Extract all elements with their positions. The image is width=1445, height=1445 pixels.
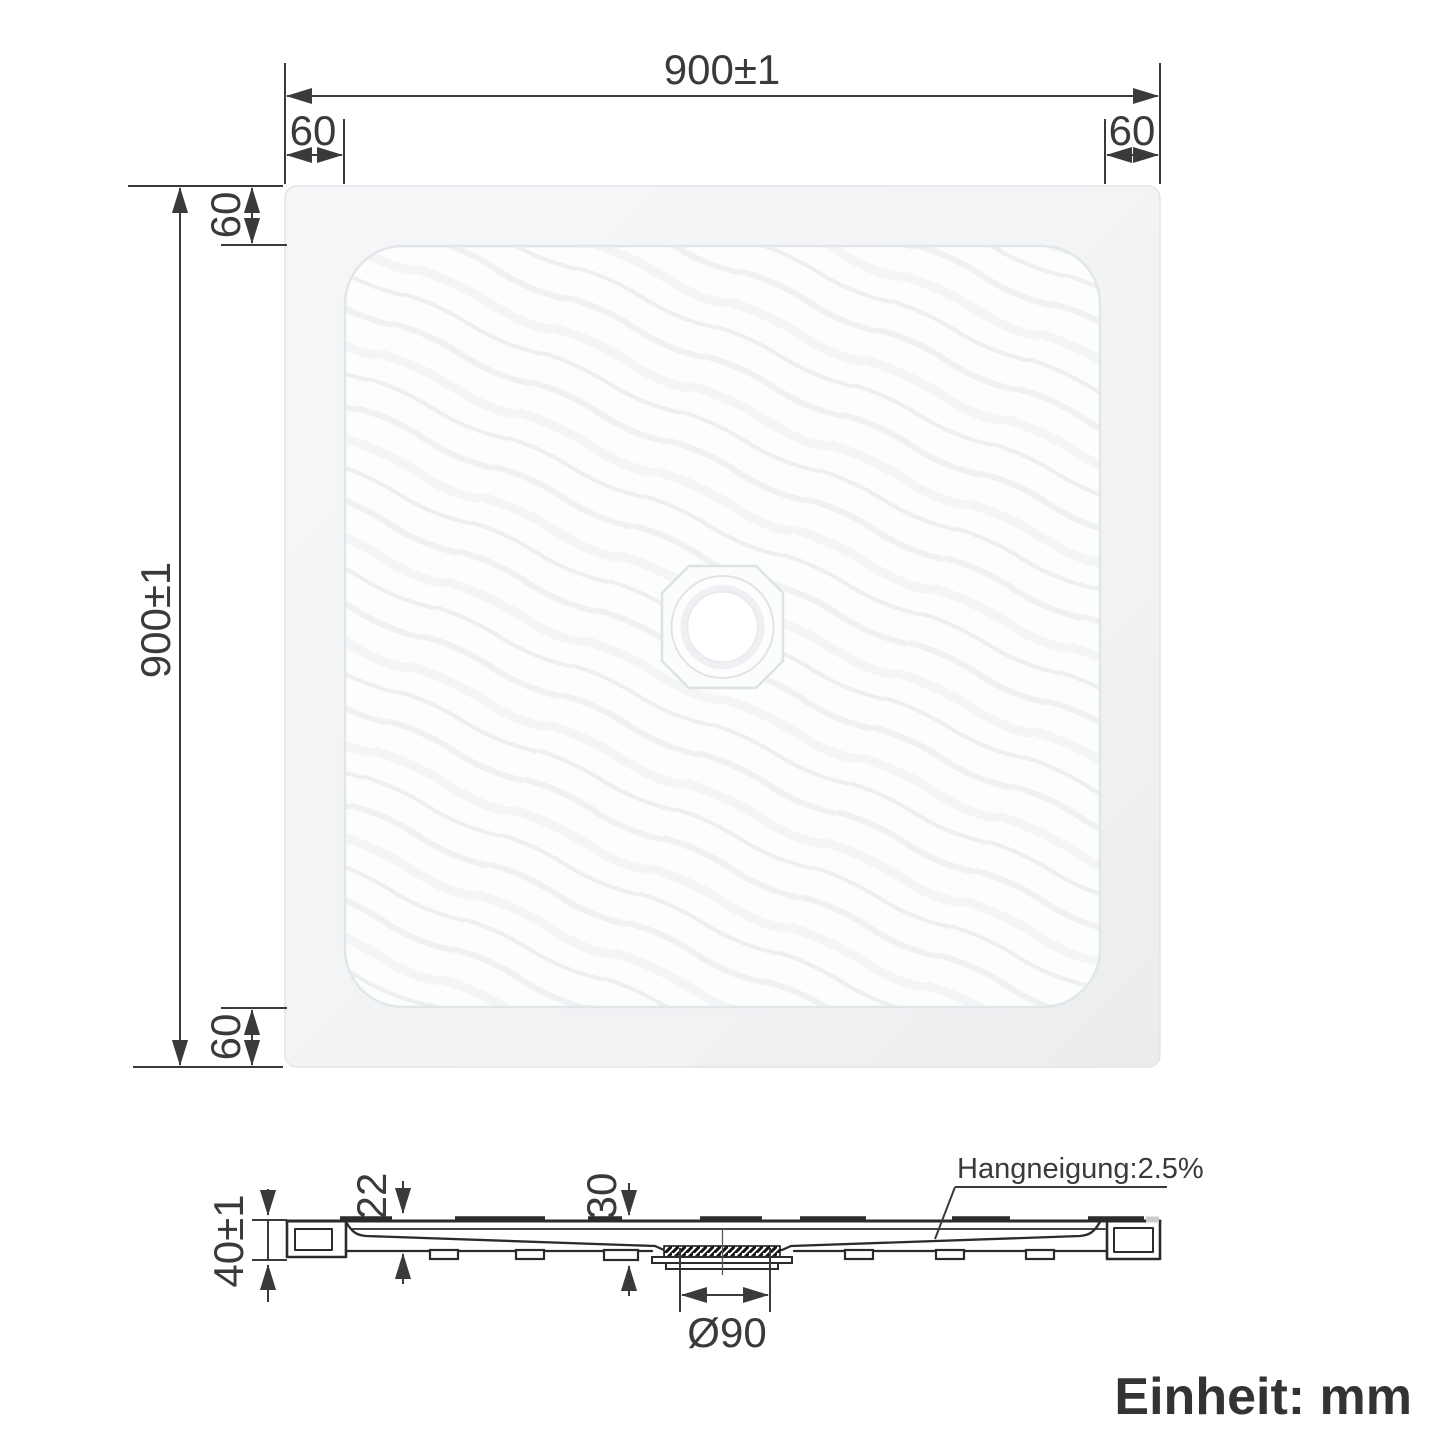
- section-left-wall-cavity: [295, 1229, 332, 1250]
- dim-margin-left-bottom-label: 60: [202, 1014, 249, 1061]
- drain-top-view: [662, 566, 783, 688]
- section-right-wall-cavity: [1114, 1228, 1153, 1252]
- section-view: [287, 1217, 1160, 1276]
- dim-margin-left-top-label: 60: [202, 192, 249, 239]
- slope-leader-line: [935, 1187, 1167, 1239]
- dim-section-height-label: 40±1: [205, 1194, 252, 1287]
- slope-note-label: Hangneigung:2.5%: [957, 1153, 1204, 1185]
- dim-height-label: 900±1: [132, 562, 179, 678]
- unit-note: Einheit: mm: [1114, 1368, 1412, 1426]
- dim-drain-depth-label: 30: [578, 1173, 625, 1220]
- dim-drain-diameter-label: Ø90: [687, 1309, 766, 1356]
- dim-margin-top-left-label: 60: [290, 107, 337, 154]
- drain-hole: [688, 592, 758, 662]
- dim-margin-top-right-label: 60: [1109, 107, 1156, 154]
- corner-highlight: [1146, 1217, 1159, 1223]
- dim-40-ticks: [252, 1220, 287, 1260]
- technical-drawing-page: 900±1 60 60 900±1 60 60: [0, 0, 1445, 1445]
- top-view: [285, 186, 1160, 1067]
- dim-width-label: 900±1: [664, 46, 780, 93]
- dim-rim-step-label: 22: [348, 1173, 395, 1220]
- shower-tray-diagram: 900±1 60 60 900±1 60 60: [0, 0, 1445, 1445]
